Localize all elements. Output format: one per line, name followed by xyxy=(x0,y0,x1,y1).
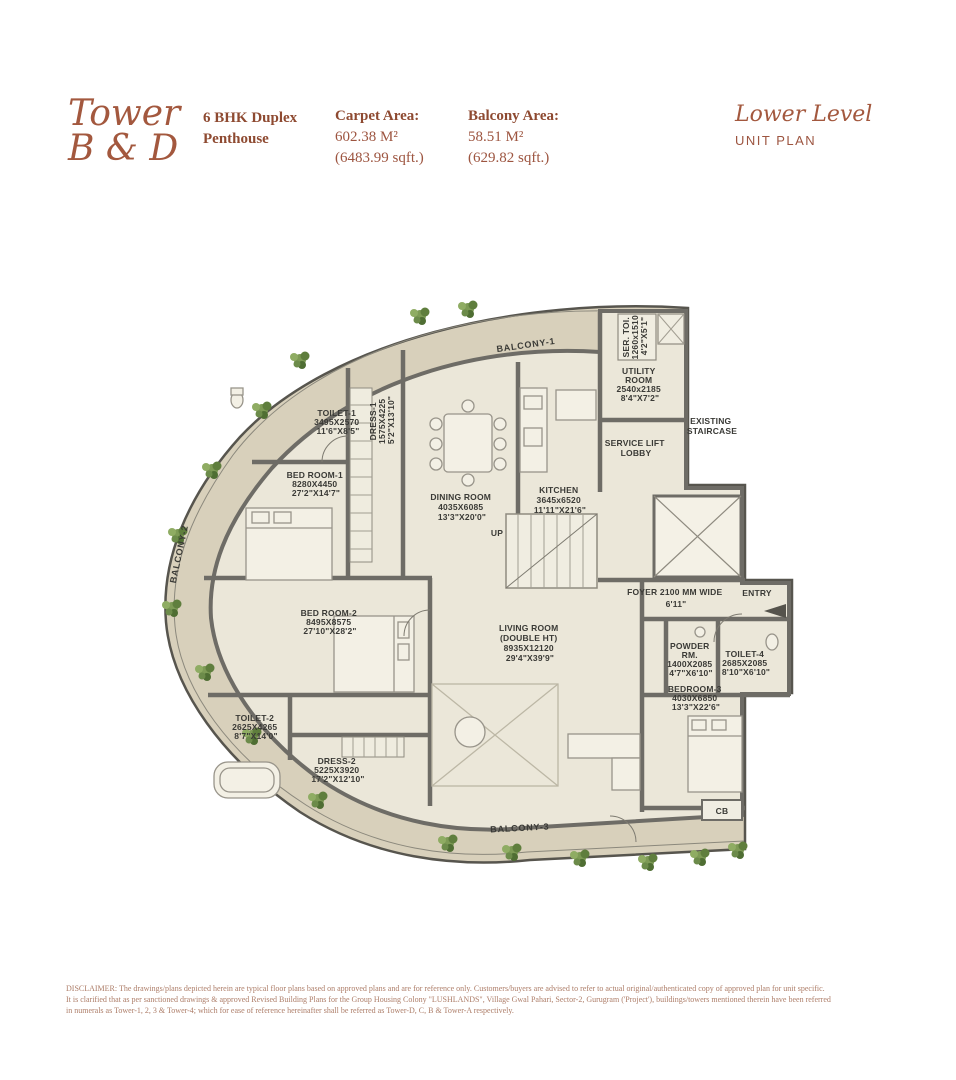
floor-plan-drawing: BALCONY-1 SER. TOI. 1260x1510 4'2"X5'1" … xyxy=(0,0,956,1080)
floor-plan-page: Tower B & D 6 BHK Duplex Penthouse Carpe… xyxy=(0,0,956,1080)
service-lift-shaft xyxy=(654,496,741,577)
room-label-dress1: DRESS-1 1575X4225 5'2"X13'10" xyxy=(368,396,396,444)
room-label-living: LIVING ROOM (DOUBLE HT) 8935X12120 29'4"… xyxy=(499,623,561,663)
sofa xyxy=(568,734,640,758)
room-label-ser-toi: SER. TOI. 1260x1510 4'2"X5'1" xyxy=(621,313,649,360)
room-label-dress2: DRESS-2 5225X3920 17'2"X12'10" xyxy=(311,756,364,784)
kitchen-fridge xyxy=(556,390,596,420)
room-label-toilet4: TOILET-4 2685X2085 8'10"X6'10" xyxy=(722,649,770,677)
room-label-toilet2: TOILET-2 2625X4265 8'7"X14'0" xyxy=(232,713,280,741)
cb-label: CB xyxy=(716,806,729,816)
room-label-kitchen: KITCHEN 3645x6520 11'11"X21'6" xyxy=(534,485,586,515)
room-label-entry: ENTRY xyxy=(742,588,772,598)
living-round-table xyxy=(455,717,485,747)
disclaimer: DISCLAIMER: The drawings/plans depicted … xyxy=(66,983,900,1016)
room-label-toilet1: TOILET-1 3495X2570 11'6"X8'5" xyxy=(314,408,362,436)
room-label-bedroom3: BEDROOM-3 4030X6850 13'3"X22'6" xyxy=(668,684,724,712)
room-label-existing-staircase: EXISTING STAIRCASE xyxy=(687,416,737,436)
internal-staircase xyxy=(506,514,597,588)
room-label-dining: DINING ROOM 4035X6085 13'3"X20'0" xyxy=(430,492,493,522)
room-label-bedroom2: BED ROOM-2 8495X8575 27'10"X28'2" xyxy=(301,608,360,636)
room-label-utility: UTILITY ROOM 2540x2185 8'4"X7'2" xyxy=(617,366,664,403)
disclaimer-line1: DISCLAIMER: The drawings/plans depicted … xyxy=(66,983,900,994)
kitchen-hob xyxy=(524,428,542,446)
disclaimer-line3: in numerals as Tower-1, 2, 3 & Tower-4; … xyxy=(66,1005,900,1016)
powder-basin xyxy=(695,627,705,637)
kitchen-sink xyxy=(524,396,542,409)
wc-toilet4 xyxy=(766,634,778,650)
stair-up-label: UP xyxy=(491,528,503,538)
disclaimer-line2: It is clarified that as per sanctioned d… xyxy=(66,994,900,1005)
room-label-bedroom1: BED ROOM-1 8280X4450 27'2"X14'7" xyxy=(287,470,346,498)
room-label-powder: POWDER RM. 1400X2085 4'7"X6'10" xyxy=(667,641,715,678)
dining-table xyxy=(444,414,492,472)
